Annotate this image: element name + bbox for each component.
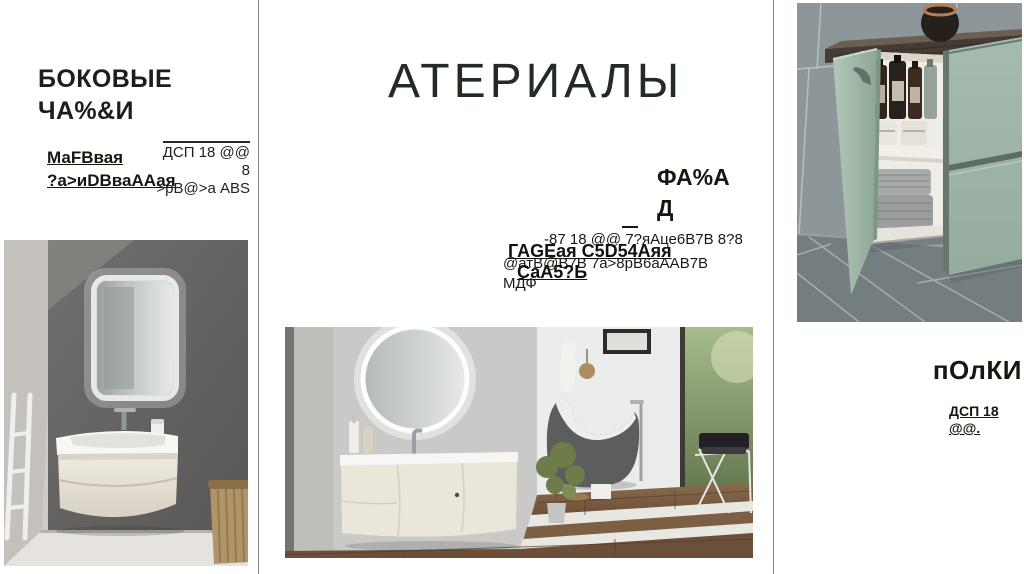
center-body-line: МДФ xyxy=(503,275,537,292)
heading-line: Д xyxy=(657,193,730,224)
spec-line: ДСП 18 @@ xyxy=(163,141,250,162)
center-photo-illustration xyxy=(285,327,753,558)
left-photo xyxy=(4,240,248,566)
left-spec-note: ДСП 18 @@ 8 >рВ@>а ABS xyxy=(130,141,250,198)
slide-title: АТЕРИАЛЫ xyxy=(388,54,683,109)
right-section-heading: пОлКИ xyxy=(880,355,1022,386)
spec-line: ДСП 18 xyxy=(949,403,999,420)
heading-line: ЧА%&И xyxy=(38,95,172,127)
overline-mark xyxy=(622,226,638,228)
heading-line: БОКОВЫЕ xyxy=(38,63,172,95)
heading-line: ФА%А xyxy=(657,162,730,193)
right-spec-note: ДСП 18 @@. xyxy=(949,403,999,437)
right-photo xyxy=(797,3,1022,322)
left-section-heading: БОКОВЫЕ ЧА%&И xyxy=(38,63,172,127)
left-photo-illustration xyxy=(4,240,248,566)
column-divider-right xyxy=(773,0,774,574)
column-divider-left xyxy=(258,0,259,574)
center-photo xyxy=(285,327,753,558)
right-photo-illustration xyxy=(797,3,1022,322)
center-section-heading: ФА%А Д xyxy=(657,162,730,224)
spec-line: >рВ@>а ABS xyxy=(130,180,250,198)
spec-line: @@. xyxy=(949,420,999,437)
spec-line: 8 xyxy=(130,162,250,180)
